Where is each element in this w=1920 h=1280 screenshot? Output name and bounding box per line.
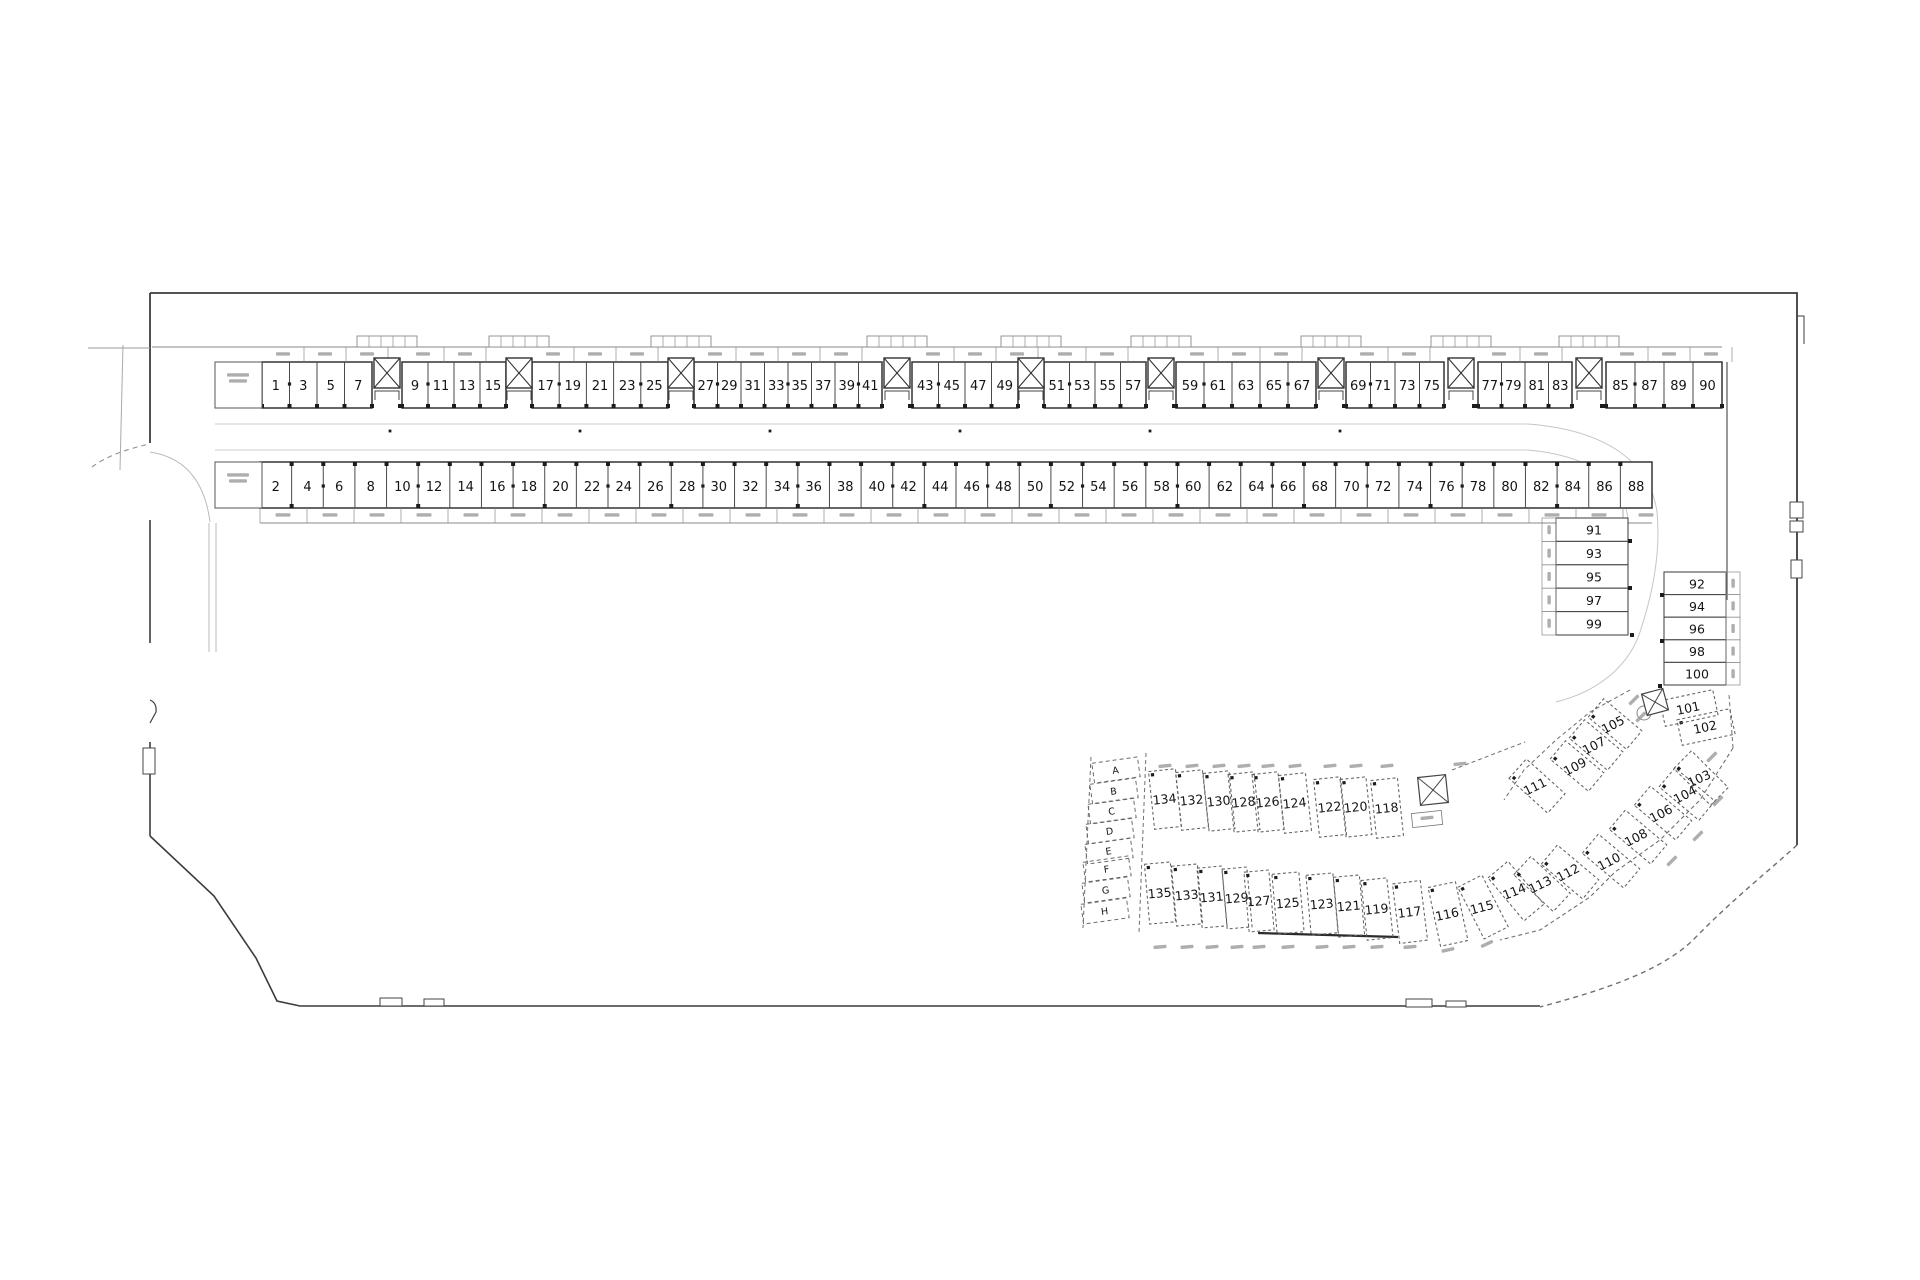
tiny-label-smudge	[1075, 513, 1090, 516]
tiny-label-smudge	[981, 513, 996, 516]
stall-number: 116	[1434, 904, 1461, 924]
stall-number: 92	[1689, 576, 1705, 591]
stall-number: 53	[1074, 379, 1091, 394]
stall-number: 12	[426, 480, 443, 495]
stall-number: 46	[964, 480, 981, 495]
stall-number: 49	[996, 379, 1013, 394]
stall-number: 75	[1423, 379, 1440, 394]
tiny-label-smudge	[1547, 619, 1550, 628]
stall-number: 32	[742, 480, 759, 495]
stall-number: 101	[1675, 698, 1701, 718]
stall-number: 74	[1406, 480, 1423, 495]
stall-number: 48	[995, 480, 1012, 495]
tiny-label-smudge	[1547, 549, 1550, 558]
tiny-label-smudge	[1323, 764, 1336, 769]
tiny-label-smudge	[1100, 352, 1114, 355]
stall-number: 65	[1266, 379, 1283, 394]
stall-number: 99	[1586, 616, 1602, 631]
stall-number: 123	[1309, 896, 1334, 913]
stair-shaft	[1301, 336, 1361, 347]
stall-number: 120	[1343, 798, 1368, 815]
stall-number: 51	[1048, 379, 1065, 394]
zone-letter: F	[1103, 864, 1110, 876]
tiny-label-smudge	[1492, 352, 1506, 355]
tiny-label-smudge	[1180, 945, 1193, 950]
stair-core-icon	[374, 358, 400, 400]
tiny-label-smudge	[229, 379, 247, 382]
stall-number: 98	[1689, 644, 1705, 659]
tiny-label-smudge	[1281, 945, 1294, 950]
tiny-label-smudge	[1370, 945, 1383, 950]
stall-number: 68	[1312, 480, 1329, 495]
stall-number: 134	[1152, 790, 1177, 807]
tiny-label-smudge	[1547, 525, 1550, 534]
tiny-label-smudge	[227, 473, 249, 476]
tiny-label-smudge	[1261, 764, 1274, 769]
tiny-label-smudge	[1545, 513, 1560, 516]
stall-number: 86	[1596, 480, 1613, 495]
stall-number: 79	[1505, 379, 1522, 394]
stall-number: 25	[646, 379, 663, 394]
stall-number: 15	[485, 379, 502, 394]
tiny-label-smudge	[793, 513, 808, 516]
tiny-label-smudge	[1158, 764, 1171, 769]
stall-number: 1	[272, 379, 280, 394]
tiny-label-smudge	[926, 352, 940, 355]
tiny-label-smudge	[416, 352, 430, 355]
stall-number: 34	[774, 480, 791, 495]
tiny-label-smudge	[1731, 579, 1734, 588]
stall-number: 55	[1099, 379, 1116, 394]
stall-number: 73	[1399, 379, 1416, 394]
stall-number: 77	[1481, 379, 1498, 394]
stall-number: 94	[1689, 599, 1705, 614]
stall-number: 67	[1294, 379, 1311, 394]
tiny-label-smudge	[1252, 945, 1265, 950]
stall-number: 54	[1090, 480, 1107, 495]
tiny-label-smudge	[588, 352, 602, 355]
tiny-label-smudge	[417, 513, 432, 516]
stall-number: 80	[1501, 480, 1518, 495]
tiny-label-smudge	[750, 352, 764, 355]
stall-number: 119	[1364, 900, 1389, 917]
stair-core-icon	[506, 358, 532, 400]
tiny-label-smudge	[1420, 816, 1433, 821]
stall-number: 14	[457, 480, 474, 495]
stall-number: 9	[411, 379, 419, 394]
stall-number: 40	[869, 480, 886, 495]
stall-number: 17	[537, 379, 554, 394]
stall-number: 100	[1685, 667, 1709, 682]
tiny-label-smudge	[1205, 945, 1218, 950]
tiny-label-smudge	[652, 513, 667, 516]
stall-number: 83	[1552, 379, 1569, 394]
stall-number: 7	[354, 379, 362, 394]
stair-core-icon	[1148, 358, 1174, 400]
stall-number: 66	[1280, 480, 1297, 495]
stall-number: 23	[619, 379, 636, 394]
stall-number: 88	[1628, 480, 1645, 495]
stall-number: 37	[815, 379, 832, 394]
tiny-label-smudge	[511, 513, 526, 516]
stall-number: 31	[744, 379, 761, 394]
stall-number: 6	[335, 480, 343, 495]
tiny-label-smudge	[1190, 352, 1204, 355]
stall-number: 44	[932, 480, 949, 495]
tiny-label-smudge	[360, 352, 374, 355]
stall-number: 135	[1147, 885, 1172, 902]
stall-number: 26	[647, 480, 664, 495]
tiny-label-smudge	[1380, 764, 1393, 769]
zone-letter: E	[1105, 846, 1112, 858]
stall-number: 29	[721, 379, 738, 394]
stall-number: 131	[1199, 889, 1224, 906]
stall-number: 56	[1122, 480, 1139, 495]
tiny-label-smudge	[1230, 945, 1243, 950]
stall-number: 3	[299, 379, 307, 394]
tiny-label-smudge	[1534, 352, 1548, 355]
stall-number: 70	[1343, 480, 1360, 495]
stall-number: 127	[1246, 893, 1271, 910]
stall-number: 121	[1336, 898, 1361, 915]
stall-number: 28	[679, 480, 696, 495]
tiny-label-smudge	[1349, 764, 1362, 769]
tiny-label-smudge	[1731, 601, 1734, 610]
stall-number: 64	[1248, 480, 1265, 495]
stall-number: 85	[1612, 379, 1629, 394]
tiny-label-smudge	[1480, 940, 1493, 949]
stall-number: 27	[697, 379, 714, 394]
stall-number: 108	[1622, 825, 1650, 849]
stall-number: 76	[1438, 480, 1455, 495]
tiny-label-smudge	[1731, 669, 1734, 678]
stall-number: 61	[1210, 379, 1227, 394]
tiny-label-smudge	[1360, 352, 1374, 355]
tiny-label-smudge	[1592, 513, 1607, 516]
stall-number: 113	[1526, 872, 1554, 896]
stall-number: 109	[1561, 754, 1589, 778]
tiny-label-smudge	[840, 513, 855, 516]
stall-number: 93	[1586, 546, 1602, 561]
stall-number: 115	[1468, 897, 1495, 918]
stall-number: 45	[943, 379, 960, 394]
stall-number: 63	[1238, 379, 1255, 394]
stair-core-icon	[1018, 358, 1044, 400]
tiny-label-smudge	[1403, 945, 1416, 950]
tiny-label-smudge	[1498, 513, 1513, 516]
stall-number: 58	[1153, 480, 1170, 495]
stair-shaft	[651, 336, 711, 347]
stall-number: 52	[1058, 480, 1075, 495]
stall-number: 47	[970, 379, 987, 394]
stall-number: 18	[521, 480, 538, 495]
stall-number: 42	[900, 480, 917, 495]
zone-letter: C	[1108, 806, 1116, 818]
tiny-label-smudge	[699, 513, 714, 516]
stall-number: 84	[1565, 480, 1582, 495]
stall-number: 16	[489, 480, 506, 495]
stall-number: 133	[1174, 887, 1199, 904]
stall-number: 82	[1533, 480, 1550, 495]
stall-number: 19	[565, 379, 582, 394]
stair-core-icon	[1642, 689, 1669, 716]
tiny-label-smudge	[464, 513, 479, 516]
tiny-label-smudge	[1620, 352, 1634, 355]
stall-number: 132	[1179, 791, 1204, 808]
tiny-label-smudge	[1662, 352, 1676, 355]
tiny-label-smudge	[1237, 764, 1250, 769]
tiny-label-smudge	[276, 352, 290, 355]
tiny-label-smudge	[1666, 855, 1678, 867]
tiny-label-smudge	[1731, 647, 1734, 656]
stall-number: 69	[1350, 379, 1367, 394]
tiny-label-smudge	[1169, 513, 1184, 516]
stair-core-icon	[1576, 358, 1602, 400]
stair-core-icon	[1318, 358, 1344, 400]
stall-number: 96	[1689, 622, 1705, 637]
stair-shaft	[1131, 336, 1191, 347]
stall-number: 8	[367, 480, 375, 495]
zone-letter: A	[1112, 765, 1120, 777]
tiny-label-smudge	[1453, 762, 1466, 767]
tiny-label-smudge	[1639, 513, 1654, 516]
tiny-label-smudge	[1451, 513, 1466, 516]
stair-shaft	[357, 336, 417, 347]
tiny-label-smudge	[1628, 694, 1640, 706]
stall-number: 30	[710, 480, 727, 495]
stall-number: 106	[1647, 801, 1675, 825]
tiny-label-smudge	[1706, 751, 1718, 763]
tiny-label-smudge	[1402, 352, 1416, 355]
stair-shaft	[489, 336, 549, 347]
stair-shaft	[1559, 336, 1619, 347]
stall-number: 125	[1275, 895, 1300, 912]
stall-number: 62	[1217, 480, 1234, 495]
tiny-label-smudge	[605, 513, 620, 516]
tiny-label-smudge	[1212, 764, 1225, 769]
stall-number: 117	[1397, 903, 1423, 921]
tiny-label-smudge	[1288, 764, 1301, 769]
tiny-label-smudge	[1028, 513, 1043, 516]
stall-number: 22	[584, 480, 601, 495]
stall-number: 10	[394, 480, 411, 495]
service-room	[215, 462, 262, 508]
stall-number: 126	[1255, 793, 1280, 810]
stall-number: 81	[1528, 379, 1545, 394]
tiny-label-smudge	[1122, 513, 1137, 516]
floor-plan-canvas: 1357911131517192123252729313335373941434…	[0, 0, 1920, 1280]
tiny-label-smudge	[458, 352, 472, 355]
tiny-label-smudge	[630, 352, 644, 355]
zone-letter: D	[1105, 826, 1114, 838]
stair-core-icon	[1418, 775, 1449, 806]
tiny-label-smudge	[1185, 764, 1198, 769]
stall-number: 111	[1521, 774, 1549, 798]
stair-core-icon	[884, 358, 910, 400]
tiny-label-smudge	[1404, 513, 1419, 516]
tiny-label-smudge	[1547, 595, 1550, 604]
tiny-label-smudge	[229, 479, 247, 482]
tiny-label-smudge	[887, 513, 902, 516]
stair-core-icon	[668, 358, 694, 400]
service-room	[215, 362, 262, 408]
stall-number: 4	[303, 480, 311, 495]
tiny-label-smudge	[1310, 513, 1325, 516]
stall-number: 102	[1692, 717, 1718, 737]
tiny-label-smudge	[1263, 513, 1278, 516]
stall-number: 11	[433, 379, 450, 394]
stall-number: 13	[459, 379, 476, 394]
stall-number: 91	[1586, 523, 1602, 538]
tiny-label-smudge	[1342, 945, 1355, 950]
tiny-label-smudge	[1441, 947, 1454, 953]
tiny-label-smudge	[792, 352, 806, 355]
tiny-label-smudge	[558, 513, 573, 516]
stall-number: 114	[1500, 880, 1528, 903]
stall-number: 2	[272, 480, 280, 495]
tiny-label-smudge	[1232, 352, 1246, 355]
tiny-label-smudge	[1058, 352, 1072, 355]
tiny-label-smudge	[318, 352, 332, 355]
tiny-label-smudge	[968, 352, 982, 355]
parking-stalls-layer: 1357911131517192123252729313335373941434…	[152, 336, 1740, 953]
stair-shaft	[1001, 336, 1061, 347]
tiny-label-smudge	[1547, 572, 1550, 581]
stall-number: 59	[1182, 379, 1199, 394]
tiny-label-smudge	[1315, 945, 1328, 950]
zone-letter: H	[1100, 906, 1109, 918]
stall-number: 39	[838, 379, 855, 394]
tiny-label-smudge	[323, 513, 338, 516]
stall-number: 118	[1374, 799, 1399, 816]
tiny-label-smudge	[1731, 624, 1734, 633]
tiny-label-smudge	[1704, 352, 1718, 355]
stall-number: 21	[592, 379, 609, 394]
stall-number: 72	[1375, 480, 1392, 495]
stair-core-icon	[1448, 358, 1474, 400]
zone-letter: G	[1101, 885, 1110, 897]
stall-number: 20	[552, 480, 569, 495]
stall-number: 90	[1699, 379, 1716, 394]
stall-number: 33	[768, 379, 785, 394]
stall-number: 89	[1670, 379, 1687, 394]
stall-number: 43	[917, 379, 934, 394]
stall-number: 122	[1317, 798, 1342, 815]
tiny-label-smudge	[276, 513, 291, 516]
stall-number: 35	[791, 379, 808, 394]
stall-number: 5	[327, 379, 335, 394]
stall-number: 110	[1595, 849, 1623, 873]
stall-number: 36	[805, 480, 822, 495]
zone-letter: B	[1110, 786, 1118, 798]
tiny-label-smudge	[708, 352, 722, 355]
stair-shaft	[867, 336, 927, 347]
tiny-label-smudge	[746, 513, 761, 516]
tiny-label-smudge	[1357, 513, 1372, 516]
stall-number: 24	[616, 480, 633, 495]
tiny-label-smudge	[834, 352, 848, 355]
stall-number: 124	[1282, 794, 1307, 811]
tiny-label-smudge	[227, 373, 249, 376]
tiny-label-smudge	[1692, 830, 1704, 842]
parking-floor-plan-drawing: 1357911131517192123252729313335373941434…	[0, 0, 1920, 1280]
stall-number: 130	[1206, 792, 1231, 809]
stall-number: 107	[1580, 733, 1608, 757]
stall-number: 112	[1554, 860, 1582, 884]
stall-number: 105	[1599, 712, 1627, 736]
tiny-label-smudge	[1153, 945, 1166, 950]
stall-number: 87	[1641, 379, 1658, 394]
stall-number: 57	[1125, 379, 1142, 394]
stall-number: 128	[1231, 793, 1256, 810]
stall-number: 78	[1470, 480, 1487, 495]
stall-number: 50	[1027, 480, 1044, 495]
stall-number: 97	[1586, 593, 1602, 608]
tiny-label-smudge	[1712, 795, 1724, 807]
stall-number: 38	[837, 480, 854, 495]
stall-number: 71	[1374, 379, 1391, 394]
stall-number: 95	[1586, 570, 1602, 585]
tiny-label-smudge	[1216, 513, 1231, 516]
tiny-label-smudge	[546, 352, 560, 355]
tiny-label-smudge	[1274, 352, 1288, 355]
stair-shaft	[1431, 336, 1491, 347]
tiny-label-smudge	[1010, 352, 1024, 355]
stall-number: 41	[862, 379, 879, 394]
stall-number: 60	[1185, 480, 1202, 495]
tiny-label-smudge	[934, 513, 949, 516]
tiny-label-smudge	[370, 513, 385, 516]
